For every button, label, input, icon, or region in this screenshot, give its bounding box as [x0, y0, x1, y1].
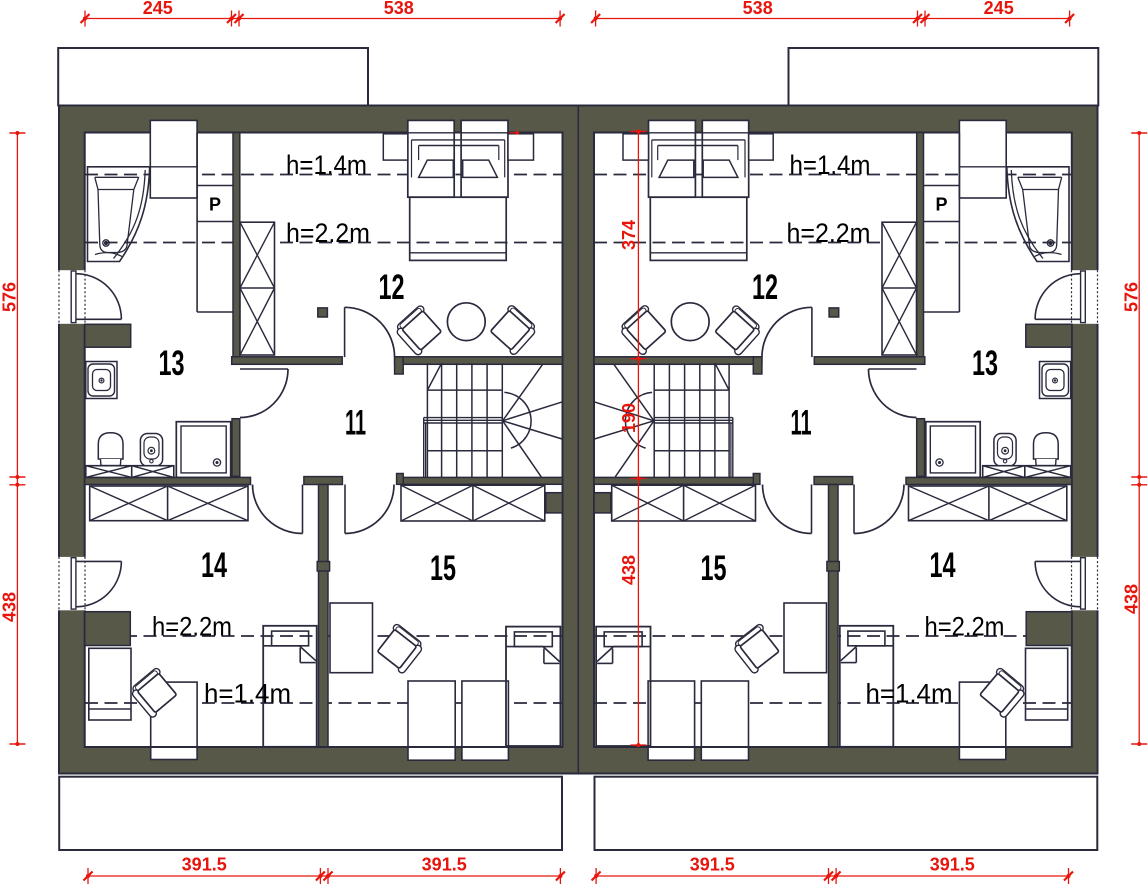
- svg-text:190: 190: [619, 403, 639, 433]
- svg-text:14: 14: [201, 546, 227, 585]
- svg-text:374: 374: [619, 220, 639, 250]
- svg-text:h=1.4m: h=1.4m: [866, 679, 953, 709]
- svg-text:245: 245: [984, 0, 1014, 18]
- svg-text:h=2.2m: h=2.2m: [286, 218, 370, 248]
- svg-text:14: 14: [930, 546, 956, 585]
- svg-text:h=2.2m: h=2.2m: [152, 612, 232, 642]
- svg-text:576: 576: [0, 282, 19, 312]
- svg-text:438: 438: [619, 555, 639, 585]
- svg-text:538: 538: [384, 0, 414, 18]
- svg-text:13: 13: [972, 344, 998, 383]
- svg-text:15: 15: [430, 549, 456, 588]
- svg-text:438: 438: [1122, 584, 1142, 614]
- svg-text:h=1.4m: h=1.4m: [790, 150, 871, 180]
- svg-text:11: 11: [791, 403, 812, 442]
- svg-text:12: 12: [752, 268, 778, 307]
- svg-text:576: 576: [1122, 282, 1142, 312]
- svg-text:13: 13: [159, 344, 185, 383]
- svg-text:438: 438: [0, 592, 19, 622]
- svg-text:P: P: [209, 195, 221, 215]
- svg-text:391.5: 391.5: [930, 855, 975, 875]
- svg-text:h=1.4m: h=1.4m: [286, 150, 367, 180]
- svg-text:391.5: 391.5: [690, 855, 735, 875]
- svg-text:391.5: 391.5: [422, 855, 467, 875]
- svg-text:245: 245: [143, 0, 173, 18]
- svg-text:h=2.2m: h=2.2m: [787, 218, 871, 248]
- svg-text:391.5: 391.5: [182, 855, 227, 875]
- svg-text:538: 538: [743, 0, 773, 18]
- svg-text:h=2.2m: h=2.2m: [925, 612, 1005, 642]
- svg-text:15: 15: [701, 549, 727, 588]
- svg-text:11: 11: [345, 403, 366, 442]
- svg-text:h=1.4m: h=1.4m: [204, 679, 291, 709]
- svg-text:12: 12: [379, 268, 405, 307]
- svg-text:P: P: [935, 195, 947, 215]
